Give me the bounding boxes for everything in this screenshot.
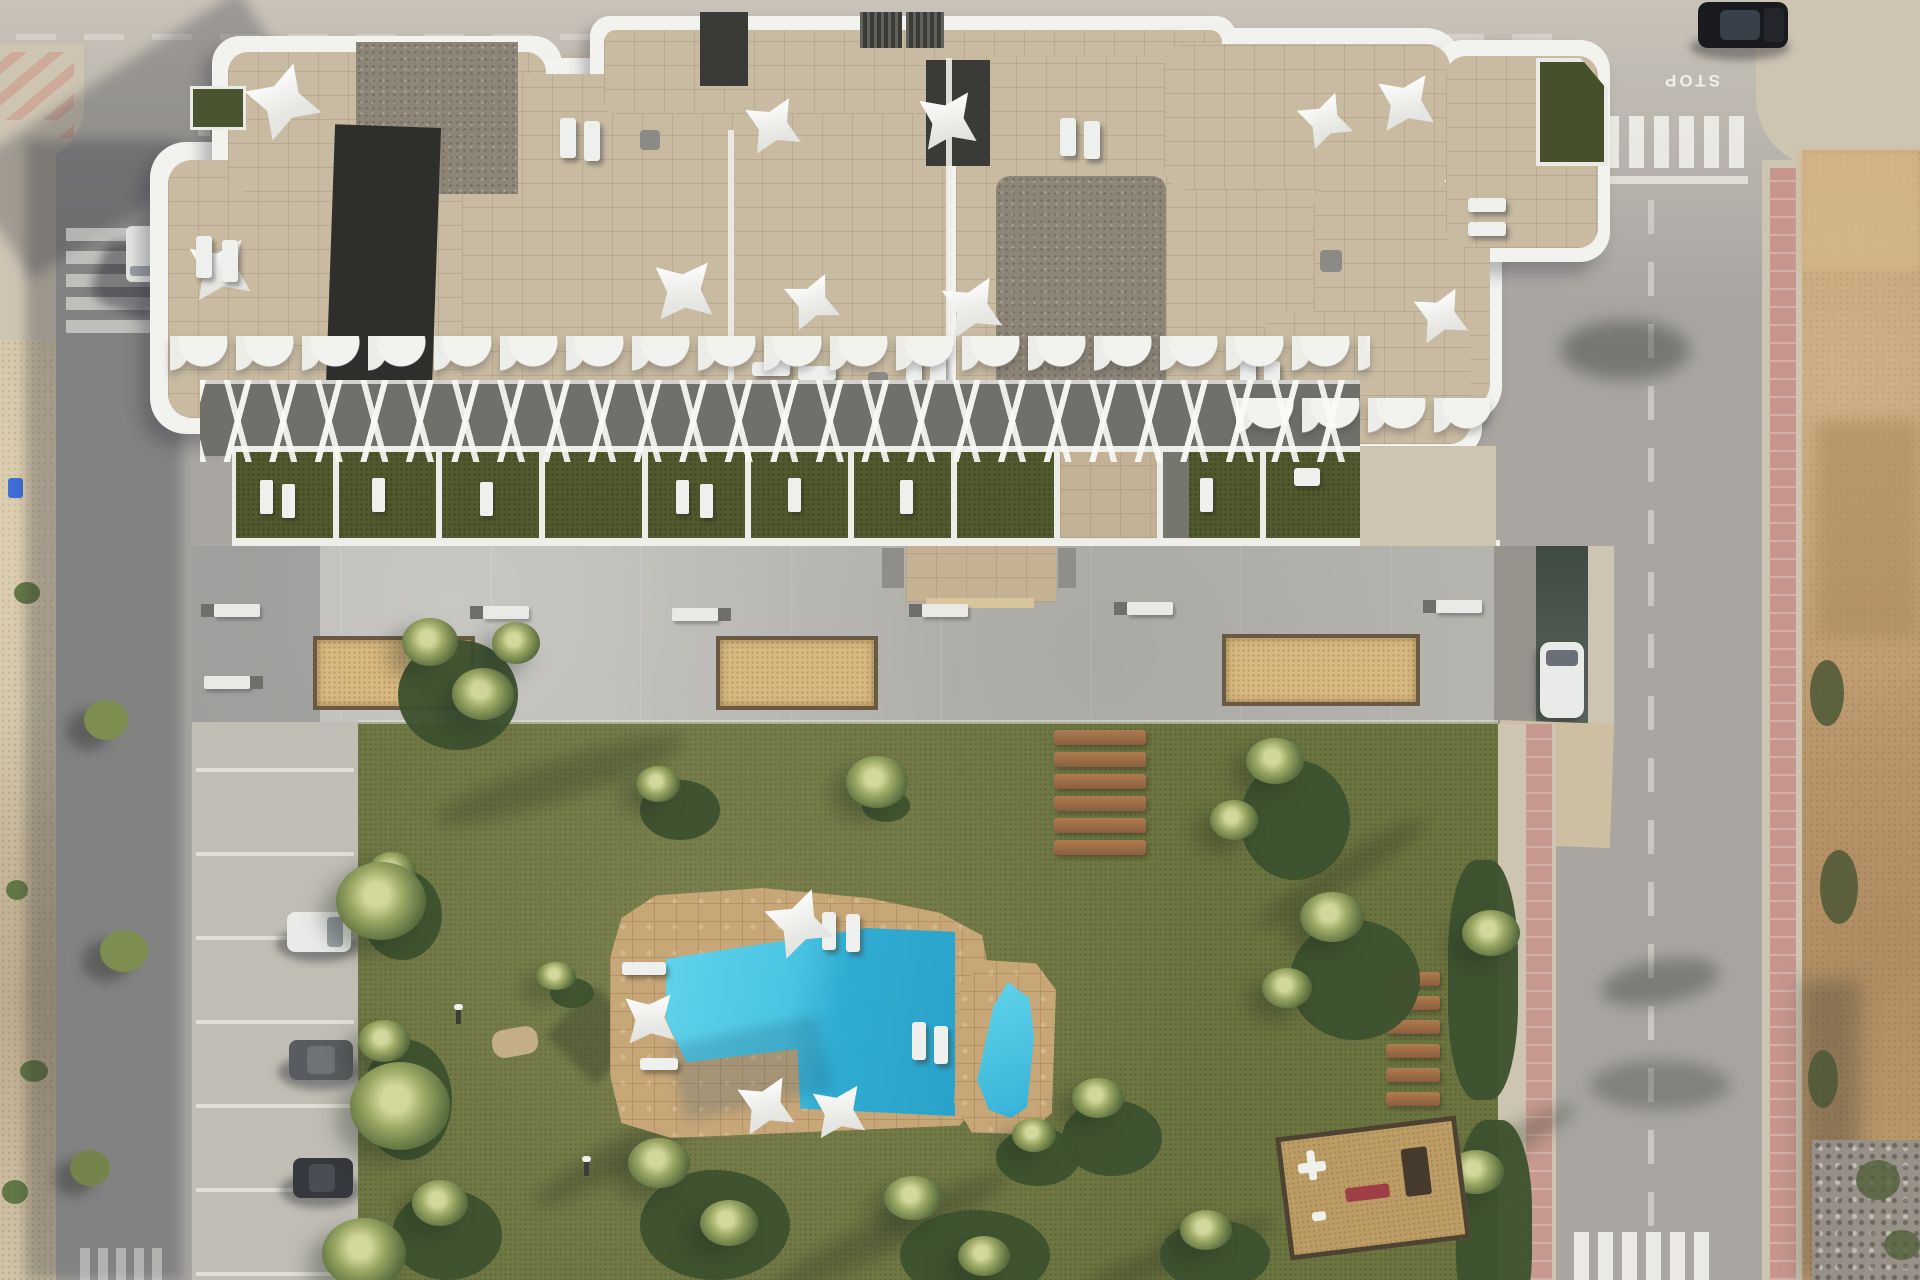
palm-tree [636,766,680,802]
palm-tree [1462,910,1520,956]
roof-lounger [1468,222,1506,236]
roof-green-bed [190,86,246,130]
entrance-pillar [882,548,904,588]
wood-sun-benches-seg [1386,1092,1440,1106]
crosswalk-southwest-seg [116,1248,126,1280]
road-tree-shadow [1560,320,1690,380]
wood-sun-benches-seg [1386,1044,1440,1058]
crosswalk-northeast-seg [1729,116,1744,168]
crosswalk-southwest-seg [134,1248,144,1280]
pool-lounger [640,1058,678,1070]
parking-palm [336,862,426,940]
roadside-tree [100,930,148,972]
bench-end-cap [201,604,214,617]
entrance-pillar [1058,548,1076,588]
parked-car-black [1698,2,1788,48]
garden-lamp [584,1160,589,1176]
playground [1275,1115,1471,1260]
sand-planter [716,636,878,710]
right-road-dashes-seg [1648,820,1654,854]
wood-steps-seg [1054,774,1146,789]
dirt-scrub [1820,850,1858,924]
dirt-scrub [1856,1160,1900,1200]
dirt-scrub [1884,1230,1920,1260]
palm-tree [358,1020,410,1062]
roof-lounger [196,236,212,278]
right-road-dashes-seg [1648,1006,1654,1040]
plaza-bench [922,604,968,617]
dirt-sand-top [1800,150,1920,270]
crosswalk-northeast-seg [1654,116,1669,168]
pool-lounger [912,1022,926,1060]
pool-lounger [934,1026,948,1064]
wood-steps-seg [1054,840,1146,855]
palm-tree [412,1180,468,1226]
right-road-dashes-seg [1648,200,1654,234]
terrace-lounger [1200,478,1213,512]
plaza-bench [204,676,250,689]
play-equipment-white [1312,1211,1327,1222]
terrace-lounger [676,480,689,514]
terrace-turf [339,452,436,538]
parking-lines-seg [196,852,354,856]
wood-sun-benches-seg [1386,1068,1440,1082]
bench-end-cap [250,676,263,689]
sand-bush [6,880,28,900]
terrace-turf [1266,452,1360,538]
terrace-lounger [700,484,713,518]
plaza-bench [483,606,529,619]
terrace-lounger [900,480,913,514]
palm-tree [1180,1210,1232,1250]
roof-stair-box [700,12,748,86]
right-road-dashes-seg [1648,758,1654,792]
road-tree-shadow [1590,1060,1730,1110]
terrace-turf [957,452,1054,538]
palm-tree [1072,1078,1124,1118]
aerial-render-canvas: STOP [0,0,1920,1280]
right-road-dashes-seg [1648,262,1654,296]
car-windshield [327,917,343,947]
dirt-scrub [1808,1050,1838,1108]
sand-bush [2,1180,28,1204]
roof-lounger [1468,198,1506,212]
crosswalk-southeast-seg [1694,1232,1709,1280]
roof-lounger [560,118,576,158]
garden-lamp [456,1008,461,1024]
palm-tree [402,618,458,666]
garage-side-walk [1588,546,1614,724]
wood-steps-seg [1054,796,1146,811]
garden-hedge [1448,860,1518,1100]
stop-road-marking: STOP [1650,70,1720,90]
palm-tree [628,1138,690,1188]
sand-planter [1222,634,1420,706]
play-bench-red [1345,1183,1390,1202]
stop-line [1608,176,1748,184]
right-road-dashes-seg [1648,882,1654,916]
crosswalk-northeast-seg [1629,116,1644,168]
palm-tree [452,668,514,720]
right-road-dashes-seg [1648,696,1654,730]
terrace-lounger [372,478,385,512]
car-roof [307,1046,335,1074]
crosswalk-southeast-seg [1670,1232,1685,1280]
palm-tree [884,1176,942,1220]
terrace-lounger [282,484,295,518]
parked-car-gray [289,1040,353,1080]
ramp-car-white [1540,642,1584,718]
palm-tree [1262,968,1312,1008]
crosswalk-southeast-seg [1574,1232,1589,1280]
car-hood [1764,8,1784,42]
terrace-lounger [480,482,493,516]
plaza-bench [672,608,718,621]
dirt-scrub [1810,660,1844,726]
lamp-head [582,1156,591,1162]
roadside-tree [84,700,128,740]
roof-table [1320,250,1342,272]
bench-end-cap [909,604,922,617]
palm-tree [1246,738,1304,784]
crosswalk-southwest-seg [80,1248,90,1280]
roof-vent-grate [906,12,944,48]
terrace-turf [648,452,745,538]
wood-steps-seg [1054,818,1146,833]
bench-end-cap [1423,600,1436,613]
play-frame-dark [1400,1146,1432,1197]
garden-hedge [1456,1120,1532,1280]
palm-tree [846,756,908,808]
palm-tree [958,1236,1010,1276]
plaza-bench [1436,600,1482,613]
play-equipment-white [1306,1150,1318,1181]
terrace-lounger [260,480,273,514]
car-roof [309,1164,335,1192]
right-road-dashes-seg [1648,1192,1654,1226]
bench-end-cap [470,606,483,619]
dirt-dark-patch [1816,420,1920,640]
palm-tree [1012,1118,1056,1152]
right-road-dashes-seg [1648,448,1654,482]
road-center-dashes-seg [16,34,56,40]
roof-vent-grate [860,12,902,48]
recycle-bin [8,478,23,498]
terrace-table-set [1294,468,1320,486]
parking-lines-seg [196,1104,354,1108]
right-road-dashes-seg [1648,1130,1654,1164]
crosswalk-southeast-seg [1598,1232,1613,1280]
roadside-tree [70,1150,110,1186]
roof-lounger [1060,118,1076,156]
lawn-curb [358,720,1498,724]
entrance-path [906,546,1056,602]
plaza-bench [1127,602,1173,615]
terrace-lounger [788,478,801,512]
roof-lounger [222,240,238,282]
bench-end-cap [718,608,731,621]
parked-car-dark [293,1158,353,1198]
car-roof [1720,10,1760,40]
parking-lines-seg [196,768,354,772]
car-windshield [1546,650,1578,666]
crosswalk-northeast-seg [1704,116,1719,168]
roof-table [640,130,660,150]
palm-tree [1300,892,1364,942]
roof-lounger [1084,121,1100,159]
right-road-dashes-seg [1648,510,1654,544]
terrace-turf [545,452,642,538]
pergola-lattice [200,380,1360,462]
crosswalk-southeast-seg [1646,1232,1661,1280]
right-road-dashes-seg [1648,386,1654,420]
crosswalk-southeast-seg [1622,1232,1637,1280]
crosswalk-southwest-seg [152,1248,162,1280]
sidewalk-pink-path [1770,168,1796,1280]
lamp-head [454,1004,463,1010]
bench-end-cap [1114,602,1127,615]
pool-lounger [846,914,860,952]
right-road-dashes-seg [1648,634,1654,668]
terrace-entry-path [1060,452,1157,538]
parking-palm [322,1218,406,1280]
crosswalk-northeast-seg [1679,116,1694,168]
plaza-bench [214,604,260,617]
crosswalk-southwest-seg [98,1248,108,1280]
parking-palm [350,1062,450,1150]
garage-wall [1494,546,1536,724]
wood-steps-seg [1054,752,1146,767]
palm-tree [536,962,576,990]
road-center-dashes-seg [84,34,124,40]
terrace-ramp [1163,452,1189,538]
palm-tree [1210,800,1258,840]
parking-lines-seg [196,1020,354,1024]
plaza-shadow-west [190,546,320,724]
roof-lounger [584,121,600,161]
wood-steps-seg [1054,730,1146,745]
pool-lounger [622,962,666,975]
right-road-dashes-seg [1648,572,1654,606]
palm-tree [700,1200,758,1246]
sidewalk-east-of-terraces [1360,446,1496,546]
palm-tree [492,622,540,664]
